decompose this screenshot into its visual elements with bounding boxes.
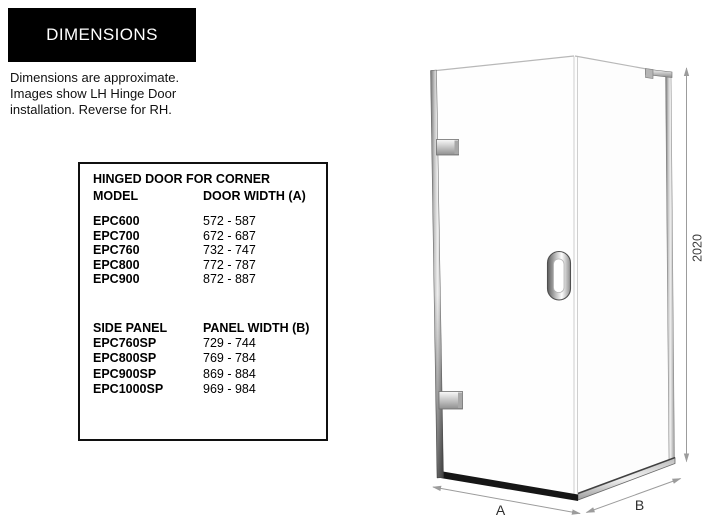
model-cell: EPC700: [93, 229, 203, 244]
table-row: EPC600 572 - 587: [93, 214, 326, 229]
column-header-door-width: DOOR WIDTH (A): [203, 188, 306, 204]
table-row: EPC700 672 - 687: [93, 229, 326, 244]
panel-width-dimension-label: B: [635, 497, 644, 513]
intro-note: Dimensions are approximate. Images show …: [10, 70, 179, 118]
width-cell: 732 - 747: [203, 243, 256, 258]
model-cell: EPC800: [93, 258, 203, 273]
page-title: DIMENSIONS: [46, 25, 158, 45]
door-section-header-row: MODEL DOOR WIDTH (A): [93, 188, 326, 204]
door-section-rows: EPC600 572 - 587 EPC700 672 - 687 EPC760…: [93, 214, 326, 287]
side-glass-panel: [575, 56, 674, 497]
lower-hinge: [439, 392, 463, 410]
table-row: EPC900 872 - 887: [93, 272, 326, 287]
wall-bracket-end-cap: [646, 69, 654, 79]
model-cell: EPC900: [93, 272, 203, 287]
table-row: EPC1000SP 969 - 984: [93, 382, 326, 398]
shower-enclosure-diagram: 2020 A B: [400, 40, 720, 529]
dimensions-page: DIMENSIONS Dimensions are approximate. I…: [0, 0, 720, 529]
column-header-side-panel: SIDE PANEL: [93, 320, 203, 336]
width-cell: 769 - 784: [203, 351, 256, 367]
column-header-model: MODEL: [93, 188, 203, 204]
upper-hinge: [437, 140, 459, 156]
width-cell: 969 - 984: [203, 382, 256, 398]
table-row: EPC760SP 729 - 744: [93, 336, 326, 352]
width-cell: 869 - 884: [203, 367, 256, 383]
height-dimension-label: 2020: [691, 234, 705, 262]
width-cell: 672 - 687: [203, 229, 256, 244]
model-cell: EPC800SP: [93, 351, 203, 367]
door-handle: [548, 252, 571, 301]
model-cell: EPC760: [93, 243, 203, 258]
dimensions-header-banner: DIMENSIONS: [8, 8, 196, 62]
table-row: EPC800SP 769 - 784: [93, 351, 326, 367]
width-cell: 772 - 787: [203, 258, 256, 273]
model-cell: EPC600: [93, 214, 203, 229]
width-cell: 729 - 744: [203, 336, 256, 352]
table-row: EPC800 772 - 787: [93, 258, 326, 273]
width-cell: 572 - 587: [203, 214, 256, 229]
panel-section-rows: EPC760SP 729 - 744 EPC800SP 769 - 784 EP…: [93, 336, 326, 398]
model-cell: EPC1000SP: [93, 382, 203, 398]
panel-section-header-row: SIDE PANEL PANEL WIDTH (B): [93, 320, 326, 336]
table-row: EPC900SP 869 - 884: [93, 367, 326, 383]
table-row: EPC760 732 - 747: [93, 243, 326, 258]
model-cell: EPC900SP: [93, 367, 203, 383]
column-header-panel-width: PANEL WIDTH (B): [203, 320, 309, 336]
door-width-dimension-label: A: [496, 502, 506, 518]
spec-table: HINGED DOOR FOR CORNER MODEL DOOR WIDTH …: [78, 162, 328, 441]
width-cell: 872 - 887: [203, 272, 256, 287]
model-cell: EPC760SP: [93, 336, 203, 352]
spec-table-title: HINGED DOOR FOR CORNER: [93, 171, 326, 188]
